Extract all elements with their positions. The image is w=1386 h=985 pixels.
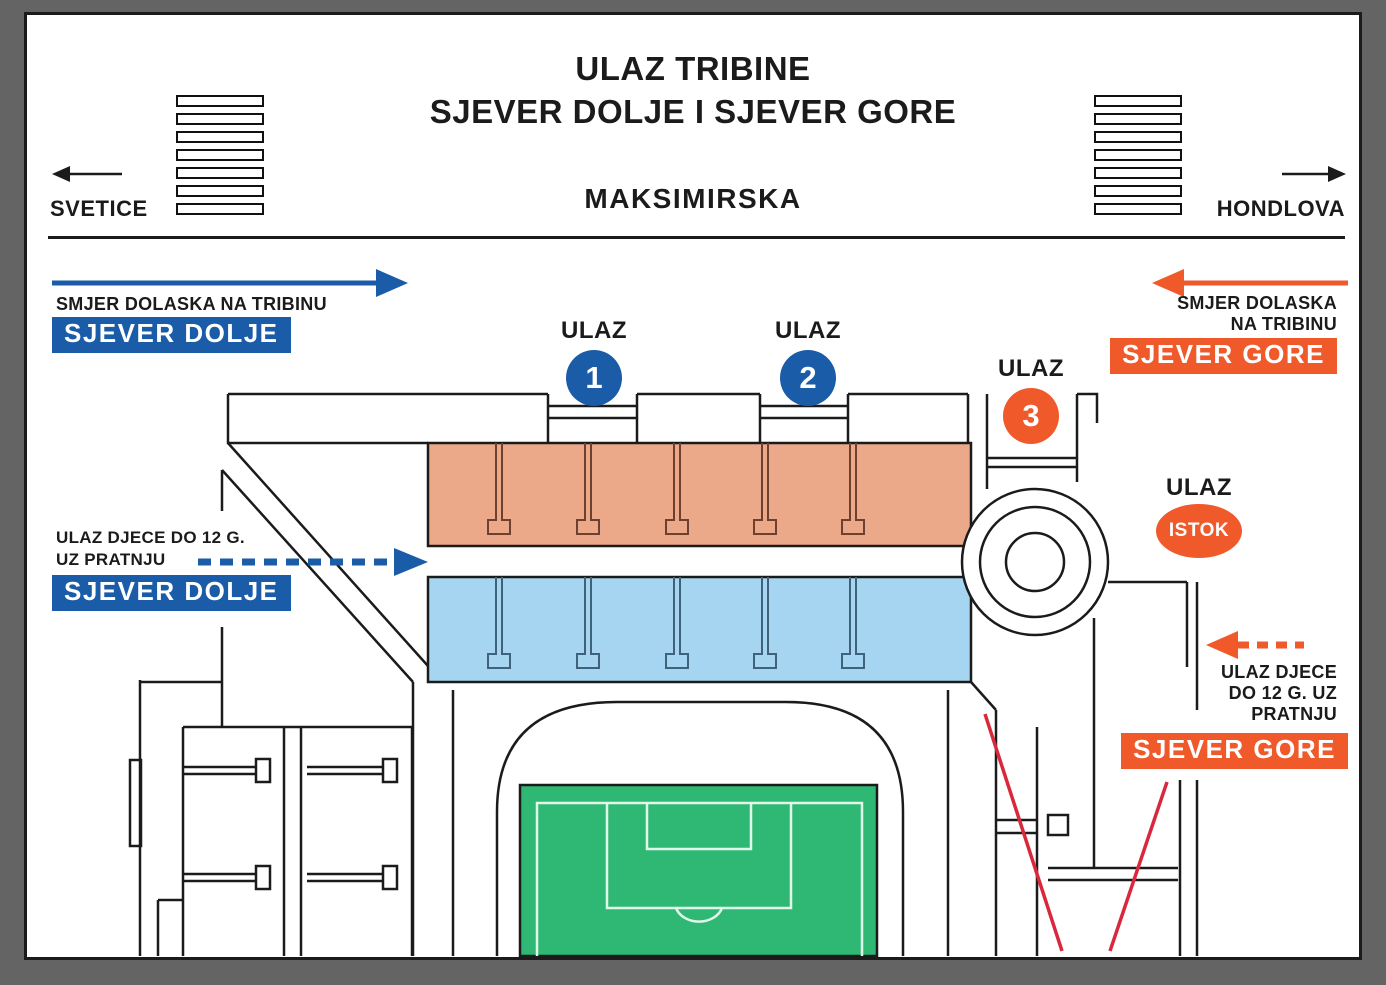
badge-sjever-gore-children: SJEVER GORE xyxy=(1121,733,1348,769)
children-arrow-sjever-dolje-icon xyxy=(198,546,430,578)
gate-istok-name: ISTOK xyxy=(1169,520,1229,542)
right-arrow-icon xyxy=(1282,162,1346,186)
gate-2-number: 2 xyxy=(799,360,816,396)
badge-sjever-dolje-arrival: SJEVER DOLJE xyxy=(52,317,291,353)
gate-2-marker: 2 xyxy=(780,350,836,406)
arrival-direction-label-sjever-dolje: SMJER DOLASKA NA TRIBINU xyxy=(56,293,327,315)
gate-3-label: ULAZ xyxy=(981,355,1081,383)
children-arrow-sjever-gore-icon xyxy=(1204,628,1308,662)
page-background: ULAZ TRIBINE SJEVER DOLJE I SJEVER GORE … xyxy=(0,0,1386,985)
crosswalk-bar xyxy=(1094,113,1182,125)
gate-1-label: ULAZ xyxy=(544,317,644,345)
crosswalk-bar xyxy=(1094,149,1182,161)
badge-sjever-dolje-children: SJEVER DOLJE xyxy=(52,575,291,611)
gate-2-label: ULAZ xyxy=(758,317,858,345)
children-entrance-line1: ULAZ DJECE xyxy=(1137,662,1337,683)
gate-3-marker: 3 xyxy=(1003,388,1059,444)
street-line xyxy=(48,236,1345,239)
crosswalk-bar xyxy=(1094,95,1182,107)
badge-sjever-gore-arrival: SJEVER GORE xyxy=(1110,338,1337,374)
title-line-1: ULAZ TRIBINE xyxy=(0,50,1386,88)
children-entrance-label-sjever-gore: ULAZ DJECE DO 12 G. UZ PRATNJU xyxy=(1137,662,1337,725)
crosswalk-bar xyxy=(1094,167,1182,179)
crosswalk-bar xyxy=(176,185,264,197)
gate-1-marker: 1 xyxy=(566,350,622,406)
crosswalk-bar xyxy=(176,113,264,125)
crosswalk-bar xyxy=(176,167,264,179)
children-entrance-line3: PRATNJU xyxy=(1137,704,1337,725)
children-entrance-line2: DO 12 G. UZ xyxy=(1137,683,1337,704)
crosswalk-bar xyxy=(176,95,264,107)
arrival-direction-label-sjever-gore: SMJER DOLASKA NA TRIBINU xyxy=(1107,293,1337,335)
gate-3-number: 3 xyxy=(1022,398,1039,434)
left-arrow-icon xyxy=(52,162,124,186)
hondlova-label: HONDLOVA xyxy=(1150,196,1345,222)
crosswalk-bar xyxy=(176,131,264,143)
gate-istok-marker: ISTOK xyxy=(1156,504,1242,558)
crosswalk-bar xyxy=(176,203,264,215)
crosswalk-left xyxy=(176,95,264,221)
gate-istok-label: ULAZ xyxy=(1149,474,1249,502)
arrival-direction-line2: NA TRIBINU xyxy=(1107,314,1337,335)
gate-1-number: 1 xyxy=(585,360,602,396)
crosswalk-bar xyxy=(1094,131,1182,143)
svetice-label: SVETICE xyxy=(50,196,148,222)
arrival-direction-line1: SMJER DOLASKA xyxy=(1107,293,1337,314)
crosswalk-bar xyxy=(176,149,264,161)
